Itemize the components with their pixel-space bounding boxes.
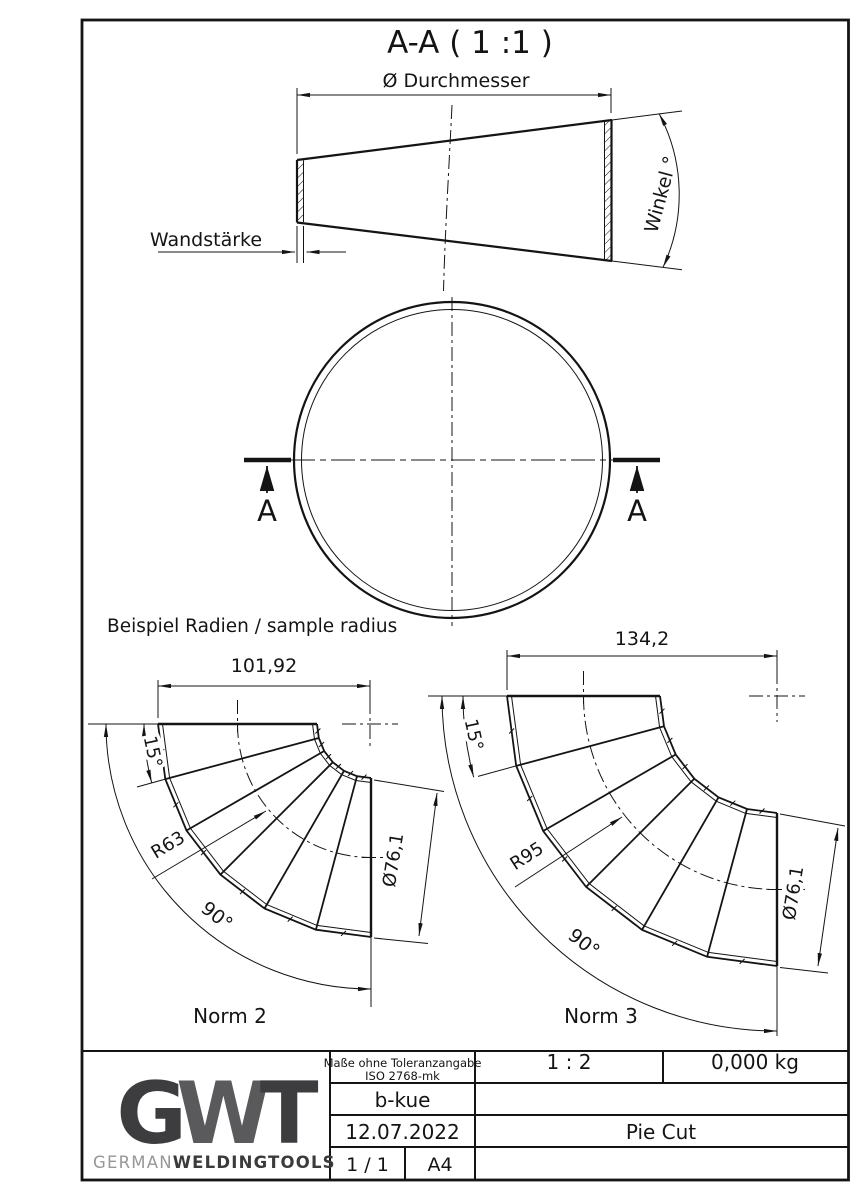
- norm3-width-value: 134,2: [615, 628, 669, 650]
- norm3-sweep-value: 90°: [564, 924, 604, 962]
- norm2-width-value: 101,92: [231, 655, 297, 677]
- author-field: b-kue: [375, 1088, 431, 1112]
- format-field: A4: [427, 1154, 452, 1176]
- tolerance-note-line2: ISO 2768-mk: [365, 1069, 440, 1083]
- drawing-sheet: A-A ( 1 :1 ) Ø Durchmesser Wandstärke Wi…: [0, 0, 868, 1199]
- norm2-diameter-value: Ø76,1: [379, 832, 408, 889]
- logo-gwt: GWT: [116, 1064, 318, 1164]
- cone-top-edge: [297, 120, 612, 160]
- tolerance-note-line1: Maße ohne Toleranzangabe: [324, 1056, 482, 1070]
- sheet-field: 1 / 1: [346, 1154, 389, 1176]
- norm3-segment-angle-value: 15°: [460, 717, 487, 753]
- norm2-title: Norm 2: [193, 1004, 267, 1028]
- dim-extension-line: [374, 780, 444, 792]
- section-marker-a-left: A: [257, 494, 277, 528]
- samples-heading: Beispiel Radien / sample radius: [107, 616, 397, 637]
- company-logo: GWT GERMANWELDINGTOOLS: [93, 1064, 336, 1172]
- angle-extension-bottom: [612, 261, 682, 270]
- date-field: 12.07.2022: [345, 1120, 460, 1144]
- wall-thickness-label: Wandstärke: [150, 229, 262, 251]
- section-view-title: A-A ( 1 :1 ): [387, 25, 553, 61]
- scale-field: 1 : 2: [547, 1050, 592, 1074]
- angle-label: Winkel °: [640, 154, 682, 236]
- norm2-pie-cut: 101,92: [88, 655, 444, 1028]
- cone-bottom-edge: [297, 223, 612, 262]
- cone-centerline: [444, 105, 453, 291]
- norm3-diameter-dim-line: [818, 828, 838, 966]
- section-marker-a-right: A: [627, 494, 647, 528]
- dim-extension-line: [374, 938, 428, 944]
- part-title-field: Pie Cut: [626, 1120, 696, 1144]
- diameter-dimension-label: Ø Durchmesser: [382, 70, 529, 92]
- norm3-pie-cut: 134,2: [428, 628, 845, 1036]
- norm2-diameter-dim-line: [419, 793, 437, 936]
- plan-view-circle: A A: [244, 297, 660, 626]
- norm2-radius-value: R63: [148, 827, 189, 863]
- weight-field: 0,000 kg: [711, 1050, 799, 1074]
- technical-drawing-canvas: A-A ( 1 :1 ) Ø Durchmesser Wandstärke Wi…: [0, 0, 868, 1199]
- section-view-cone: A-A ( 1 :1 ) Ø Durchmesser Wandstärke Wi…: [150, 25, 682, 291]
- norm2-sweep-value: 90°: [197, 897, 237, 935]
- seam-extension: [478, 766, 516, 777]
- title-block: GWT GERMANWELDINGTOOLS Maße ohne Toleran…: [83, 1050, 848, 1179]
- dim-extension-line: [780, 814, 845, 826]
- dim-extension-line: [780, 968, 828, 974]
- norm2-segment-angle-value: 15°: [139, 734, 166, 770]
- norm3-diameter-value: Ø76,1: [779, 865, 808, 922]
- norm3-title: Norm 3: [564, 1004, 638, 1028]
- angle-extension-top: [612, 111, 682, 120]
- logo-wordmark: GERMANWELDINGTOOLS: [93, 1153, 336, 1172]
